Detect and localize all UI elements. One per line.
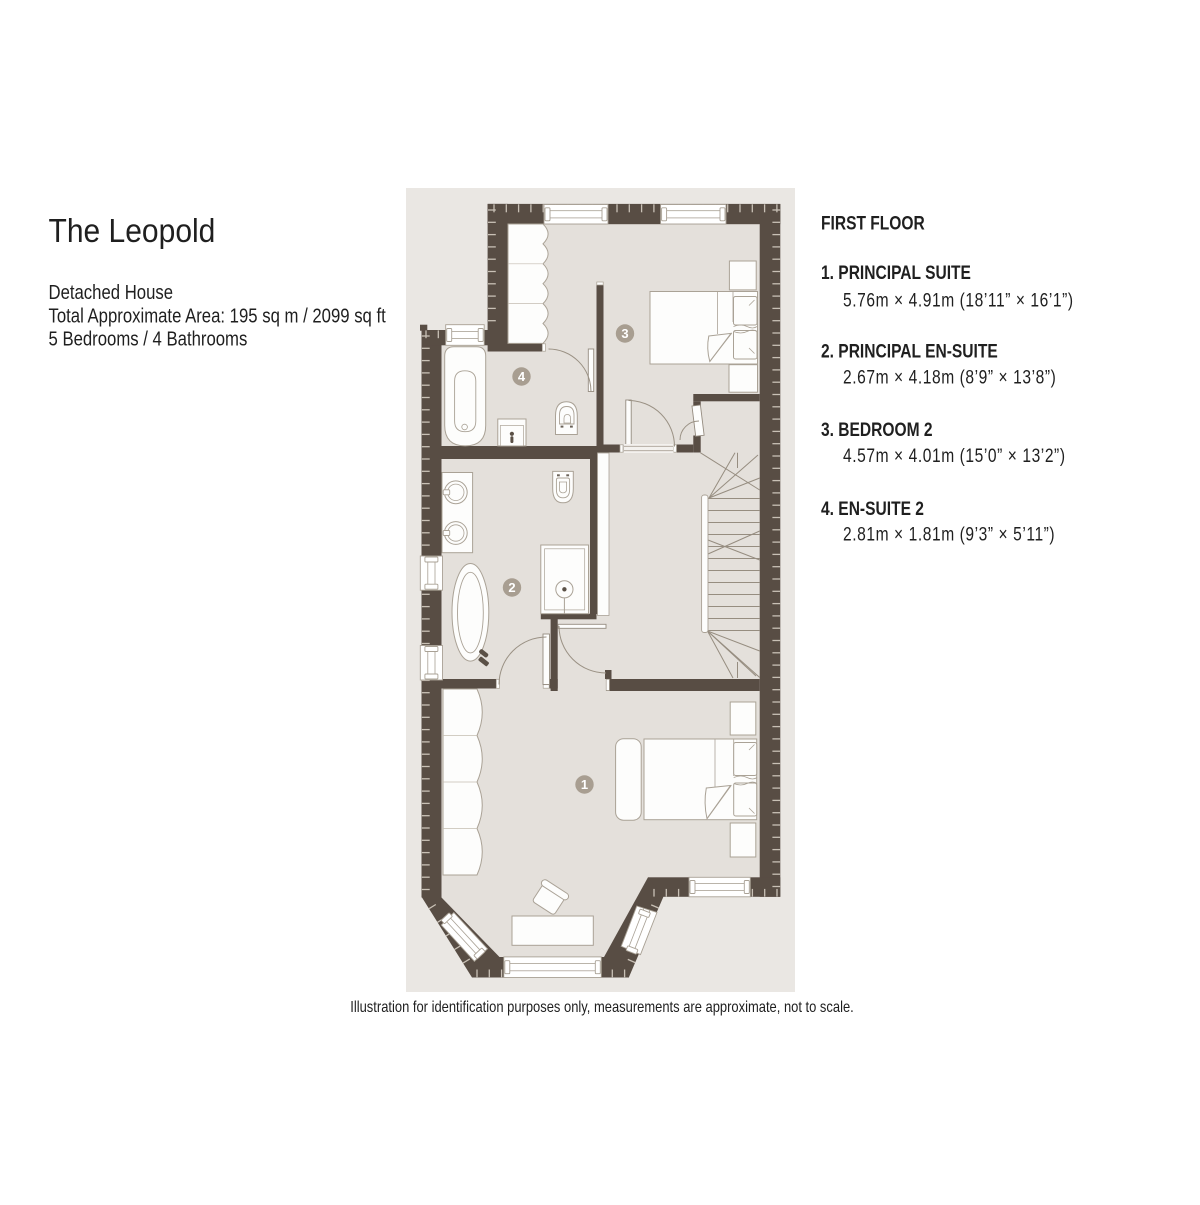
svg-text:1: 1 — [581, 777, 588, 792]
svg-text:4.57m × 4.01m (15’0” × 13’2”): 4.57m × 4.01m (15’0” × 13’2”) — [843, 444, 1066, 466]
svg-text:The Leopold: The Leopold — [49, 212, 216, 250]
svg-text:4. EN-SUITE 2: 4. EN-SUITE 2 — [821, 497, 924, 519]
svg-text:Total Approximate Area: 195 sq: Total Approximate Area: 195 sq m / 2099 … — [49, 304, 387, 327]
svg-text:3: 3 — [621, 326, 628, 341]
svg-text:4: 4 — [518, 369, 526, 384]
svg-text:5.76m × 4.91m (18’11” × 16’1”): 5.76m × 4.91m (18’11” × 16’1”) — [843, 289, 1074, 311]
svg-text:3. BEDROOM 2: 3. BEDROOM 2 — [821, 419, 933, 441]
svg-text:Detached House: Detached House — [49, 281, 174, 304]
svg-text:2: 2 — [508, 580, 515, 595]
svg-text:2.67m × 4.18m (8’9” × 13’8”): 2.67m × 4.18m (8’9” × 13’8”) — [843, 366, 1056, 388]
svg-text:2.81m × 1.81m (9’3” × 5’11”): 2.81m × 1.81m (9’3” × 5’11”) — [843, 523, 1055, 545]
svg-text:5 Bedrooms / 4 Bathrooms: 5 Bedrooms / 4 Bathrooms — [49, 327, 248, 350]
svg-text:2. PRINCIPAL EN-SUITE: 2. PRINCIPAL EN-SUITE — [821, 340, 998, 362]
svg-text:Illustration for identificatio: Illustration for identification purposes… — [350, 999, 853, 1016]
svg-text:FIRST FLOOR: FIRST FLOOR — [821, 212, 925, 234]
svg-text:1. PRINCIPAL SUITE: 1. PRINCIPAL SUITE — [821, 262, 971, 284]
